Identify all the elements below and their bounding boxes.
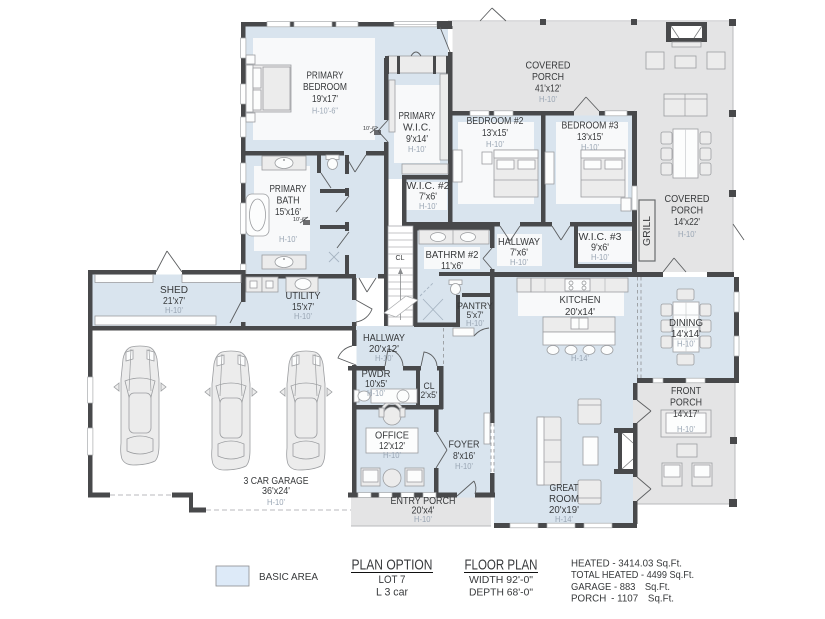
- svg-text:BATHRM #2: BATHRM #2: [426, 250, 479, 261]
- svg-text:BEDROOM: BEDROOM: [303, 82, 347, 93]
- svg-text:L 3 car: L 3 car: [376, 587, 408, 599]
- svg-text:H-10': H-10': [294, 312, 312, 321]
- svg-text:20'x14': 20'x14': [565, 307, 595, 318]
- svg-text:H-10': H-10': [367, 389, 385, 398]
- svg-text:H-10': H-10': [375, 354, 393, 363]
- svg-text:UTILITY: UTILITY: [286, 291, 321, 302]
- svg-text:FLOOR PLAN: FLOOR PLAN: [465, 558, 538, 574]
- svg-text:LOT 7: LOT 7: [379, 574, 406, 586]
- svg-text:H-14': H-14': [555, 515, 573, 524]
- svg-text:13'x15': 13'x15': [577, 132, 603, 143]
- svg-text:8'x16': 8'x16': [453, 451, 475, 462]
- svg-text:BASIC AREA: BASIC AREA: [259, 571, 318, 583]
- svg-text:13'x15': 13'x15': [482, 128, 508, 139]
- svg-text:H-10': H-10': [539, 95, 557, 104]
- svg-text:HALLWAY: HALLWAY: [498, 237, 540, 248]
- svg-text:H-10': H-10': [677, 340, 695, 349]
- svg-text:DEPTH 68'-0": DEPTH 68'-0": [469, 587, 533, 599]
- svg-text:PORCH - 1107 Sq.Ft.: PORCH - 1107 Sq.Ft.: [571, 593, 674, 605]
- svg-text:COVERED: COVERED: [665, 194, 710, 205]
- svg-text:PRIMARY: PRIMARY: [270, 184, 307, 195]
- svg-text:H-10': H-10': [383, 451, 401, 460]
- svg-text:7'x6': 7'x6': [419, 192, 437, 203]
- svg-text:GREAT: GREAT: [550, 483, 579, 494]
- svg-text:PORCH: PORCH: [532, 72, 564, 83]
- svg-text:H-10': H-10': [581, 143, 599, 152]
- svg-text:SHED: SHED: [160, 285, 188, 296]
- svg-text:ROOM: ROOM: [549, 494, 579, 505]
- svg-text:H-10': H-10': [510, 258, 528, 267]
- svg-text:11'x6': 11'x6': [441, 261, 463, 272]
- svg-text:W.I.C. #3: W.I.C. #3: [579, 232, 622, 243]
- svg-text:7'x6': 7'x6': [510, 248, 528, 259]
- svg-text:W.I.C. #2: W.I.C. #2: [407, 181, 450, 192]
- svg-text:PORCH: PORCH: [670, 398, 702, 409]
- svg-text:H-10': H-10': [466, 319, 484, 328]
- svg-text:H-10': H-10': [678, 230, 696, 239]
- svg-text:BEDROOM #2: BEDROOM #2: [467, 116, 524, 127]
- svg-text:PLAN OPTION: PLAN OPTION: [352, 558, 433, 574]
- svg-text:FRONT: FRONT: [671, 386, 701, 397]
- svg-text:9'x6': 9'x6': [591, 243, 609, 254]
- svg-text:BATH: BATH: [277, 196, 300, 207]
- svg-text:FOYER: FOYER: [449, 440, 480, 451]
- svg-text:H-10': H-10': [455, 462, 473, 471]
- svg-text:14'x17': 14'x17': [673, 409, 699, 420]
- svg-text:H-10': H-10': [279, 235, 297, 244]
- svg-text:BEDROOM #3: BEDROOM #3: [562, 121, 619, 132]
- svg-text:PORCH: PORCH: [671, 206, 703, 217]
- svg-text:H-10'-6": H-10'-6": [312, 107, 338, 116]
- svg-text:H-10': H-10': [677, 425, 695, 434]
- svg-text:H-10': H-10': [414, 515, 432, 524]
- svg-text:H-10': H-10': [408, 145, 426, 154]
- svg-text:PRIMARY: PRIMARY: [307, 71, 344, 82]
- svg-text:W.I.C.: W.I.C.: [403, 123, 431, 134]
- svg-text:WIDTH 92'-0": WIDTH 92'-0": [469, 574, 533, 586]
- svg-text:COVERED: COVERED: [526, 61, 571, 72]
- svg-text:H-10': H-10': [591, 253, 609, 262]
- svg-text:2'x5': 2'x5': [421, 390, 438, 400]
- svg-text:H-10': H-10': [165, 306, 183, 315]
- svg-text:41'x12': 41'x12': [535, 84, 561, 95]
- svg-text:36'x24': 36'x24': [262, 486, 290, 497]
- svg-text:GARAGE - 883 Sq.Ft.: GARAGE - 883 Sq.Ft.: [571, 581, 670, 593]
- svg-text:KITCHEN: KITCHEN: [560, 295, 601, 306]
- svg-text:19'x17': 19'x17': [312, 94, 338, 105]
- svg-text:CL: CL: [396, 255, 405, 262]
- svg-text:H-10': H-10': [486, 140, 504, 149]
- svg-text:GRILL: GRILL: [642, 216, 653, 246]
- svg-text:OFFICE: OFFICE: [375, 431, 409, 442]
- svg-text:TOTAL HEATED - 4499 Sq.Ft.: TOTAL HEATED - 4499 Sq.Ft.: [571, 569, 694, 581]
- svg-text:HALLWAY: HALLWAY: [363, 333, 405, 344]
- svg-text:DINING: DINING: [669, 318, 703, 329]
- svg-text:PRIMARY: PRIMARY: [399, 111, 436, 122]
- svg-text:14'x14': 14'x14': [671, 329, 701, 340]
- svg-text:14'x22': 14'x22': [674, 217, 700, 228]
- svg-text:9'x14': 9'x14': [406, 134, 428, 145]
- svg-text:H-10': H-10': [419, 202, 437, 211]
- svg-text:H-14': H-14': [571, 354, 589, 363]
- svg-text:H-10': H-10': [267, 498, 285, 507]
- svg-text:HEATED - 3414.03 Sq.Ft.: HEATED - 3414.03 Sq.Ft.: [571, 558, 682, 570]
